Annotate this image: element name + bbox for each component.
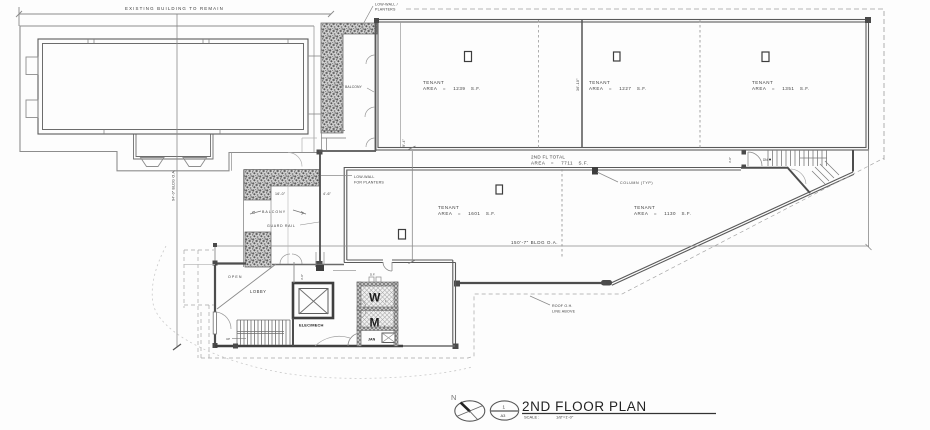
svg-text:AREA = 1239 S.F.: AREA = 1239 S.F. [423, 86, 481, 91]
svg-text:150'-7" BLDG O.A.: 150'-7" BLDG O.A. [511, 240, 558, 245]
svg-text:ELEC/MECH: ELEC/MECH [299, 323, 323, 328]
svg-text:TENANT: TENANT [423, 80, 444, 85]
svg-text:TENANT: TENANT [438, 205, 459, 210]
svg-text:COLUMN (TYP): COLUMN (TYP) [620, 181, 653, 185]
svg-text:N: N [451, 393, 456, 402]
svg-text:TENANT: TENANT [634, 205, 655, 210]
svg-text:BALCONY: BALCONY [345, 85, 363, 89]
svg-text:LOBBY: LOBBY [250, 289, 266, 294]
svg-text:2ND FL TOTAL: 2ND FL TOTAL [531, 155, 565, 160]
svg-text:AREA = 1601 S.F.: AREA = 1601 S.F. [438, 211, 496, 216]
svg-text:A3: A3 [501, 413, 507, 418]
svg-text:GUARD RAIL: GUARD RAIL [267, 224, 295, 228]
svg-text:M: M [370, 316, 380, 330]
svg-text:LOW-WALL /: LOW-WALL / [375, 3, 398, 7]
svg-text:16'-0": 16'-0" [275, 192, 286, 196]
svg-text:TENANT: TENANT [589, 80, 610, 85]
svg-text:JAN: JAN [368, 338, 376, 342]
svg-text:OPEN: OPEN [228, 275, 243, 279]
svg-text:AREA = 1351 S.F.: AREA = 1351 S.F. [752, 86, 810, 91]
svg-text:PLANTERS: PLANTERS [375, 8, 396, 12]
svg-text:LOW-WALL: LOW-WALL [354, 175, 375, 179]
svg-text:UP: UP [226, 337, 230, 341]
svg-text:DN: DN [763, 158, 768, 162]
svg-text:EXISTING BUILDING TO REMAIN: EXISTING BUILDING TO REMAIN [125, 6, 224, 11]
svg-text:9'-4": 9'-4" [402, 138, 406, 147]
svg-text:4'-6": 4'-6" [323, 192, 332, 196]
svg-text:LINE ABOVE: LINE ABOVE [552, 310, 576, 314]
svg-text:94'-0" BLDG O.A.: 94'-0" BLDG O.A. [172, 170, 176, 201]
svg-text:AREA = 1227 S.F.: AREA = 1227 S.F. [589, 86, 647, 91]
svg-text:2ND FLOOR PLAN: 2ND FLOOR PLAN [522, 399, 647, 414]
svg-text:AREA = 1130 S.F.: AREA = 1130 S.F. [634, 211, 691, 216]
svg-text:1/8"=1'-0": 1/8"=1'-0" [556, 415, 574, 420]
svg-text:SCALE :: SCALE : [524, 415, 539, 420]
svg-text:ROOF O.H.: ROOF O.H. [552, 304, 573, 308]
svg-text:TENANT: TENANT [752, 80, 773, 85]
svg-text:FOR PLANTERS: FOR PLANTERS [354, 181, 384, 185]
svg-text:3'-0": 3'-0" [728, 157, 732, 163]
svg-text:D.F.: D.F. [370, 273, 376, 277]
svg-text:3'-0": 3'-0" [300, 274, 304, 280]
svg-text:W: W [369, 291, 381, 305]
svg-text:BALCONY: BALCONY [262, 210, 286, 214]
svg-text:AREA = 7711 S.F.: AREA = 7711 S.F. [531, 161, 588, 166]
svg-text:36'-10": 36'-10" [576, 78, 580, 91]
